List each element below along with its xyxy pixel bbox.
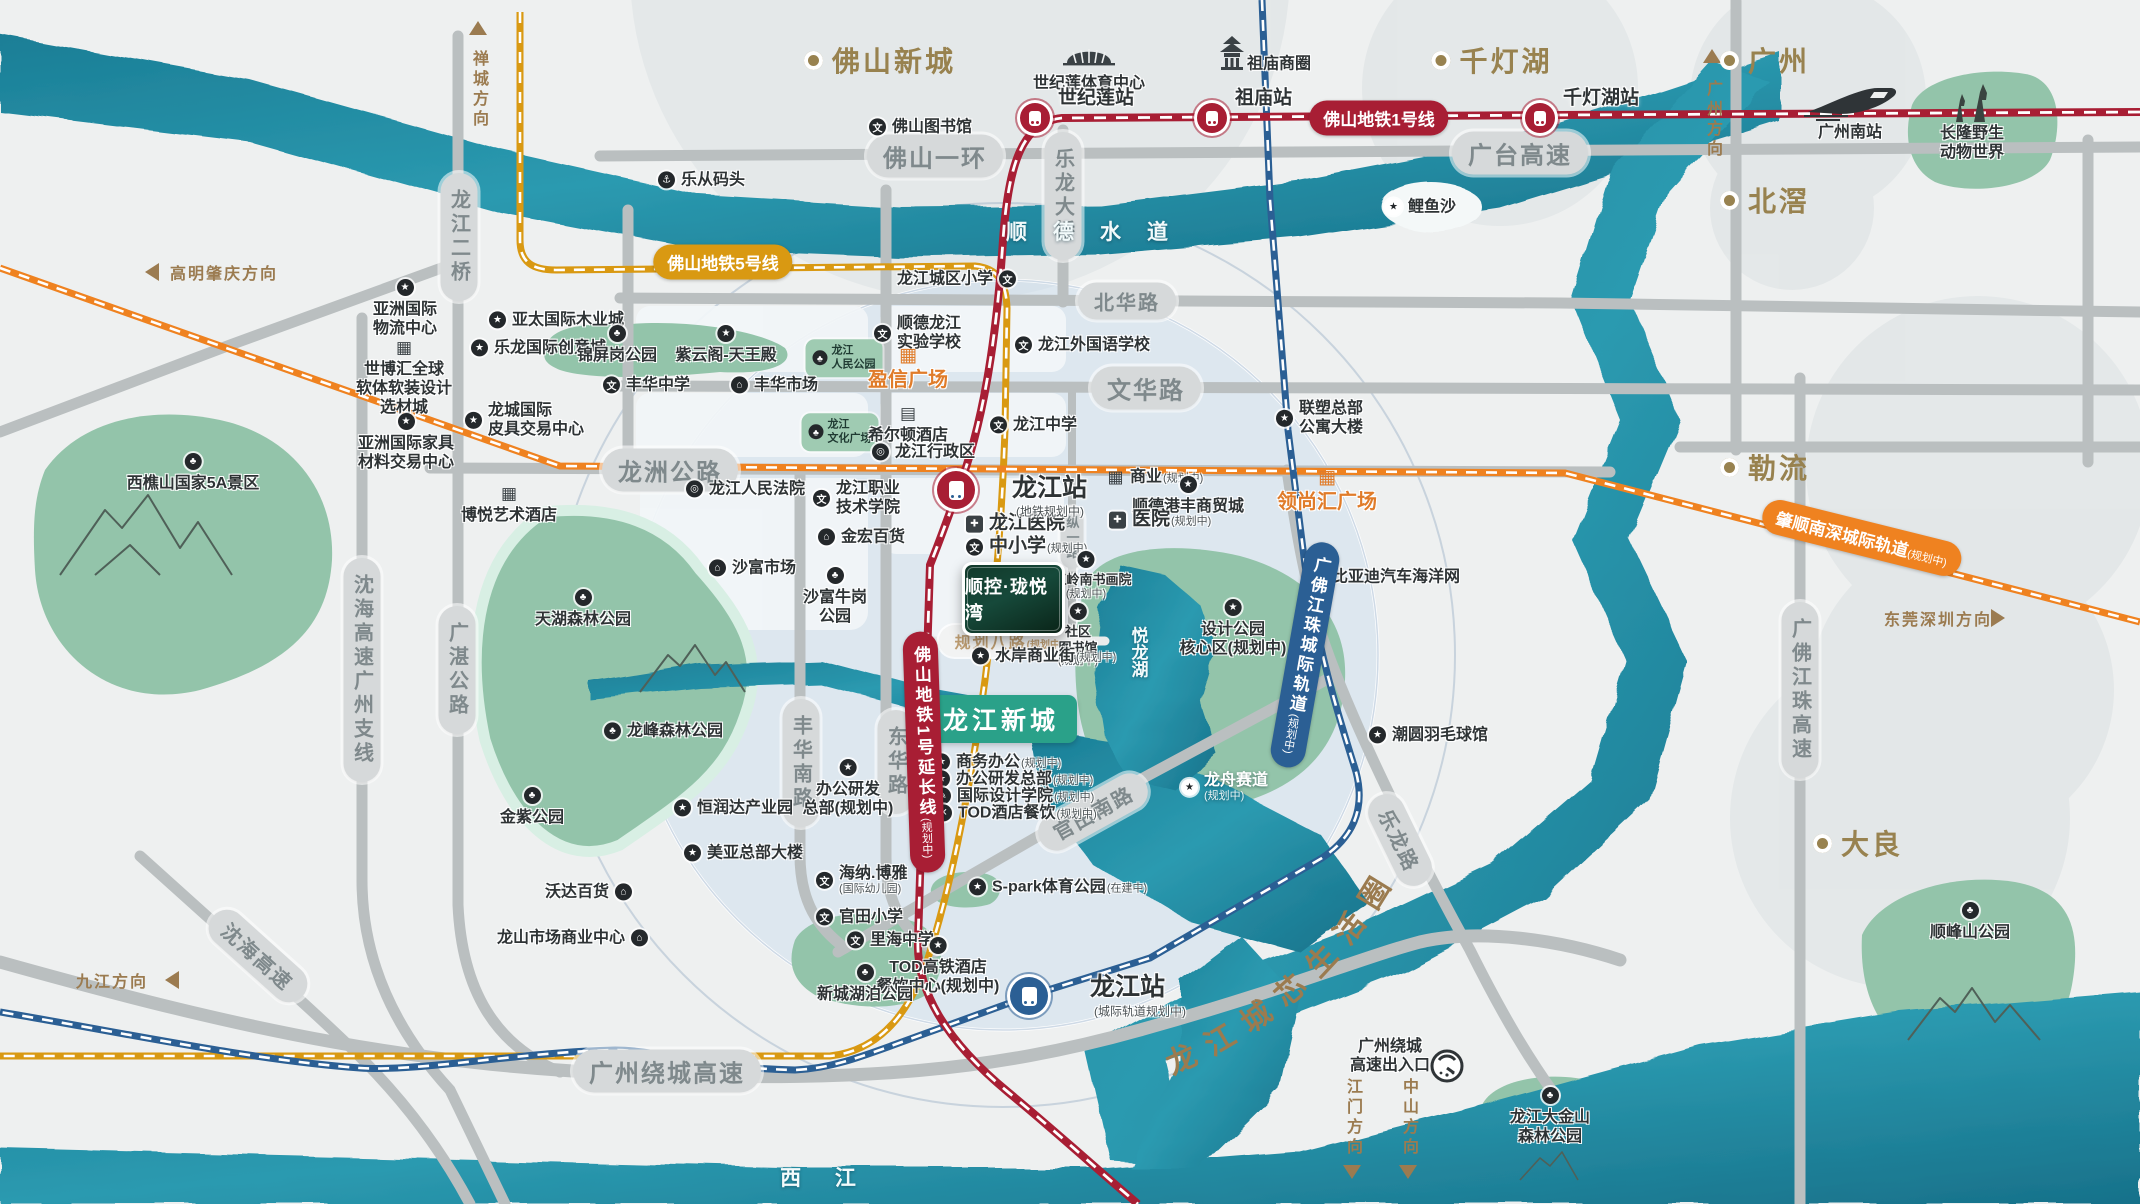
poi-海纳.博雅: 文海纳.博雅(国际幼儿园) <box>816 864 907 896</box>
station-label: 世纪莲站 <box>1058 83 1134 110</box>
poi-text: 龙江大金山森林公园 <box>1510 1108 1590 1146</box>
station-label: 龙江站 <box>1012 468 1087 504</box>
poi-龙舟赛道: ★龙舟赛道(规划中) <box>1181 771 1268 803</box>
poi-line: 医院(规划中) <box>1132 509 1211 532</box>
poi-亚洲国际家具: ★亚洲国际家具材料交易中心 <box>358 413 454 472</box>
poi-沙富市场: ⌂沙富市场 <box>709 558 796 577</box>
road-pill-text: 广湛公路 <box>446 622 468 718</box>
metro-badge-sub: (规划中) <box>1906 548 1948 569</box>
poi-text: 沙富市场 <box>732 558 796 577</box>
poi-text: 美亚总部大楼 <box>707 843 803 862</box>
poi-line: 西樵山国家5A景区 <box>127 474 259 493</box>
location-map: 龙江城芯生活圈 <box>0 0 2140 1204</box>
school-icon: 文 <box>966 538 983 555</box>
poi-line: 龙江职业 <box>836 479 900 498</box>
poi-line: 世博汇全球 <box>356 360 452 379</box>
poi-line: 亚洲国际 <box>373 300 437 319</box>
road-pill-广州绕城高速: 广州绕城高速 <box>573 1050 761 1093</box>
poi-text: TOD酒店餐饮(规划中) <box>958 803 1097 822</box>
anchor-icon: ⚓ <box>658 172 675 189</box>
school-icon: 文 <box>869 119 886 136</box>
poi-text: 龙山市场商业中心 <box>497 928 625 947</box>
poi-龙江大金山: ♣龙江大金山森林公园 <box>1510 1087 1590 1146</box>
poi-丰华中学: 文丰华中学 <box>603 375 690 394</box>
poi-line: 海纳.博雅 <box>839 864 907 883</box>
poi-line: 龙山市场商业中心 <box>497 928 625 947</box>
poi-金宏百货: ⌂金宏百货 <box>818 527 905 546</box>
poi-盈信广场: ▦盈信广场 <box>868 347 948 392</box>
area-donut-icon <box>1720 458 1739 477</box>
poi-line: 龙江外国语学校 <box>1038 335 1150 354</box>
poi-line: 顺德龙江 <box>897 314 961 333</box>
poi-龙江外国语学校: 文龙江外国语学校 <box>1015 335 1150 354</box>
school-icon: 文 <box>874 325 891 342</box>
metro-badge-佛山地铁5号线: 佛山地铁5号线 <box>653 245 792 280</box>
poi-广州南站: 广州南站 <box>1818 123 1882 142</box>
poi-联塑总部: ★联塑总部公寓大楼 <box>1276 399 1363 437</box>
poi-龙江人民法院: ◎龙江人民法院 <box>686 479 805 498</box>
market-icon: ⌂ <box>709 560 726 577</box>
park-box-龙江文化广场: ♣龙江文化广场 <box>802 413 879 451</box>
poi-line: 技术学院 <box>836 498 900 517</box>
star-icon: ★ <box>929 937 946 954</box>
poi-text: 亚洲国际家具材料交易中心 <box>358 434 454 472</box>
market-icon: ⌂ <box>631 930 648 947</box>
poi-龙江中学: 文龙江中学 <box>990 415 1077 434</box>
metro-badge-sub: (规划中) <box>920 818 933 859</box>
metro-badge-text: 佛山地铁5号线 <box>667 255 778 274</box>
poi-line: 丰华中学 <box>626 375 690 394</box>
project-logo-text: 顺控·珑悦湾 <box>965 573 1062 625</box>
water-label-悦龙湖: 悦龙湖 <box>1126 627 1151 678</box>
poi-text: 佛山图书馆 <box>892 117 972 136</box>
poi-水岸商业街: ★水岸商业街(规划中) <box>972 646 1116 665</box>
building-icon: ▦ <box>395 339 412 356</box>
poi-text: 盈信广场 <box>868 368 948 392</box>
metro-station-icon-龙江站 <box>1010 977 1048 1015</box>
poi-text: 广州南站 <box>1818 123 1882 142</box>
poi-text: 金宏百货 <box>841 527 905 546</box>
tree-icon: ♣ <box>1961 902 1978 919</box>
star-icon: ★ <box>397 413 414 430</box>
poi-text: 博悦艺术酒店 <box>461 506 557 525</box>
poi-line: 鲤鱼沙 <box>1408 197 1456 216</box>
poi-line: 金紫公园 <box>500 808 564 827</box>
direction-中山方向: 中山方向 <box>1396 1078 1420 1158</box>
poi-line: 紫云阁-天王殿 <box>675 346 776 365</box>
poi-line: 广州南站 <box>1818 123 1882 142</box>
building_o-icon: ▦ <box>1319 469 1336 486</box>
tree-icon: ♣ <box>574 589 591 606</box>
poi-line: 龙江中学 <box>1013 415 1077 434</box>
road-pill-text: 佛山一环 <box>883 146 987 173</box>
star-icon: ★ <box>471 340 488 357</box>
metro-station-icon-祖庙站 <box>1197 103 1227 133</box>
market-icon: ⌂ <box>818 529 835 546</box>
road-pill-佛山一环: 佛山一环 <box>867 135 1003 178</box>
map-labels-layer: 顺控·珑悦湾 龙江新城 ⚓乐从码头文佛山图书馆世纪莲体育中心祖庙商圈广州南站长隆… <box>0 0 2140 1204</box>
poi-line: 软体软装设计 <box>356 379 452 398</box>
hospital-icon: ✚ <box>1109 511 1126 528</box>
metro-badge-佛山地铁1号线: 佛山地铁1号线 <box>1309 101 1448 136</box>
poi-line: 盈信广场 <box>868 368 948 392</box>
direction-禅城方向: 禅城方向 <box>466 50 490 130</box>
tree-icon: ♣ <box>809 425 824 440</box>
tree-icon: ♣ <box>1541 1087 1558 1104</box>
poi-line: 高速出入口 <box>1350 1056 1430 1075</box>
road-pill-text: 沈海高速广州支线 <box>351 574 373 766</box>
metro-badge-sub: (规划中) <box>1281 713 1300 755</box>
poi-龙城国际: ★龙城国际皮具交易中心 <box>465 401 584 439</box>
school-icon: 文 <box>816 909 833 926</box>
poi-乐从码头: ⚓乐从码头 <box>658 170 745 189</box>
direction-arrow-down <box>1343 1165 1361 1179</box>
star-icon: ★ <box>1179 476 1196 493</box>
poi-line: 皮具交易中心 <box>488 420 584 439</box>
road-pill-text: 龙江二桥 <box>448 189 470 285</box>
station-sublabel: (城际轨道规划中) <box>1094 1003 1186 1020</box>
star_light-icon: ★ <box>1181 779 1198 796</box>
poi-sub: (在建中) <box>1107 882 1147 894</box>
poi-锦屏岗公园: ♣锦屏岗公园 <box>577 325 657 365</box>
tree-icon: ♣ <box>813 351 828 366</box>
school-icon: 文 <box>603 377 620 394</box>
water-label-顺德水道: 顺德水道 <box>1006 216 1194 246</box>
poi-line: 祖庙商圈 <box>1247 54 1311 73</box>
poi-line: 锦屏岗公园 <box>577 346 657 365</box>
poi-text: 龙江职业技术学院 <box>836 479 900 517</box>
area-text: 千灯湖 <box>1459 40 1552 80</box>
poi-龙山市场商业中心: 龙山市场商业中心⌂ <box>497 928 648 947</box>
poi-官田小学: 文官田小学 <box>816 907 903 926</box>
poi-line: (国际幼儿园) <box>839 883 907 896</box>
project-logo: 顺控·珑悦湾 <box>962 562 1065 636</box>
poi-text: 联塑总部公寓大楼 <box>1299 399 1363 437</box>
poi-龙江行政区: ◎龙江行政区 <box>872 442 975 461</box>
school-icon: 文 <box>816 872 833 889</box>
area-label-佛山新城: 佛山新城 <box>804 40 956 80</box>
area-text: 大良 <box>1841 823 1903 863</box>
road-pill-广湛公路: 广湛公路 <box>439 606 476 734</box>
poi-text: 乐从码头 <box>681 170 745 189</box>
direction-arrow-right <box>1991 609 2005 627</box>
poi-line: 博悦艺术酒店 <box>461 506 557 525</box>
poi-text: 沃达百货 <box>545 882 609 901</box>
poi-text: 亚洲国际物流中心 <box>373 300 437 338</box>
star-icon: ★ <box>718 325 735 342</box>
star_light-icon: ★ <box>1385 199 1402 216</box>
poi-text: 丰华市场 <box>754 375 818 394</box>
poi-医院: ✚医院(规划中) <box>1109 509 1211 532</box>
star-icon: ★ <box>674 800 691 817</box>
school-icon: 文 <box>847 932 864 949</box>
poi-text: 新城湖泊公园 <box>817 985 913 1004</box>
poi-text: 锦屏岗公园 <box>577 346 657 365</box>
building-icon: ▦ <box>500 485 517 502</box>
poi-恒润达产业园: ★恒润达产业园 <box>674 798 793 817</box>
poi-办公研发: ★办公研发总部(规划中) <box>803 759 894 818</box>
station-glyph <box>949 481 964 500</box>
road-pill-text: 沈海高速 <box>216 920 296 995</box>
poi-龙江职业: 文龙江职业技术学院 <box>813 479 900 517</box>
market-icon: ⌂ <box>615 884 632 901</box>
poi-广州绕城: 广州绕城高速出入口 <box>1350 1037 1430 1075</box>
poi-顺峰山公园: ♣顺峰山公园 <box>1930 902 2010 942</box>
water-label-西 江: 西 江 <box>780 1162 870 1192</box>
poi-text: 金紫公园 <box>500 808 564 827</box>
metro-badge-肇顺南深城际轨道: 肇顺南深城际轨道(规划中) <box>1759 496 1966 579</box>
poi-line: 金宏百货 <box>841 527 905 546</box>
poi-line: 沃达百货 <box>545 882 609 901</box>
poi-line: 沙富市场 <box>732 558 796 577</box>
station-glyph <box>1029 111 1041 126</box>
road-pill-沈海高速: 沈海高速 <box>201 902 315 1010</box>
area-label-勒流: 勒流 <box>1720 447 1810 487</box>
tree-icon: ♣ <box>826 567 843 584</box>
poi-sub: (规划中) <box>1171 516 1211 528</box>
star-icon: ★ <box>1276 410 1293 427</box>
area-donut-icon <box>1720 51 1739 70</box>
poi-line: 官田小学 <box>839 907 903 926</box>
metro-badge-text: 佛山地铁1号线 <box>1323 111 1434 130</box>
longjiang-newtown-badge: 龙江新城 <box>925 695 1077 743</box>
poi-line: 龙江大金山 <box>1510 1108 1590 1127</box>
poi-line: 公园 <box>803 607 867 626</box>
poi-text: 龙江中学 <box>1013 415 1077 434</box>
road-pill-文华路: 文华路 <box>1091 367 1201 410</box>
poi-line: S-park体育公园(在建中) <box>992 877 1147 896</box>
poi-龙江城区小学: 龙江城区小学文 <box>897 269 1016 288</box>
poi-text: 龙江人民法院 <box>709 479 805 498</box>
park-box-line: 文化广场 <box>828 432 872 446</box>
poi-text: 长隆野生动物世界 <box>1940 124 2004 162</box>
area-label-千灯湖: 千灯湖 <box>1431 40 1552 80</box>
poi-text: 天湖森林公园 <box>535 610 631 629</box>
poi-丰华市场: ⌂丰华市场 <box>731 375 818 394</box>
poi-text: 沙富牛岗公园 <box>803 588 867 626</box>
poi-text: 紫云阁-天王殿 <box>675 346 776 365</box>
poi-设计公园: ★设计公园核心区(规划中) <box>1180 599 1287 658</box>
direction-高明肇庆方向: 高明肇庆方向 <box>170 260 278 284</box>
poi-text: 龙城国际皮具交易中心 <box>488 401 584 439</box>
poi-line: 潮圆羽毛球馆 <box>1392 725 1488 744</box>
poi-sub: (规划中) <box>1076 651 1116 663</box>
poi-sub: (规划中) <box>1054 791 1094 803</box>
road-pill-沈海高速广州支线: 沈海高速广州支线 <box>344 558 381 782</box>
poi-line: 联塑总部 <box>1299 399 1363 418</box>
poi-text: 比亚迪汽车海洋网 <box>1332 567 1460 586</box>
area-donut-icon <box>804 51 823 70</box>
poi-line: (规划中) <box>1204 790 1268 803</box>
poi-line: 公寓大楼 <box>1299 418 1363 437</box>
poi-领尚汇广场: ▦领尚汇广场 <box>1277 469 1377 514</box>
station-glyph <box>1206 111 1218 126</box>
poi-line: 丰华市场 <box>754 375 818 394</box>
road-pill-text: 广佛江珠高速 <box>1789 618 1811 762</box>
gov-icon: ◎ <box>686 481 703 498</box>
area-donut-icon <box>1813 834 1832 853</box>
metro-badge-text: 肇顺南深城际轨道 <box>1774 509 1911 560</box>
road-pill-北华路: 北华路 <box>1078 283 1176 320</box>
poi-sub: (规划中) <box>1021 757 1061 769</box>
poi-text: 恒润达产业园 <box>697 798 793 817</box>
road-pill-text: 广台高速 <box>1468 143 1572 170</box>
direction-江门方向: 江门方向 <box>1340 1078 1364 1158</box>
poi-text: 广州绕城高速出入口 <box>1350 1037 1430 1075</box>
poi-line: 森林公园 <box>1510 1127 1590 1146</box>
metro-badge-text: 佛山地铁1号延长线 <box>911 645 936 818</box>
poi-沃达百货: 沃达百货⌂ <box>545 882 632 901</box>
poi-sub: (规划中) <box>1057 808 1097 820</box>
poi-S-park体育公园: ★S-park体育公园(在建中) <box>969 877 1147 896</box>
station-sublabel: (地铁规划中) <box>1016 503 1084 520</box>
poi-line: 办公研发 <box>803 780 894 799</box>
poi-天湖森林公园: ♣天湖森林公园 <box>535 589 631 629</box>
road-pill-广台高速: 广台高速 <box>1452 132 1588 175</box>
road-pill-text: 北华路 <box>1094 293 1160 315</box>
direction-arrow-left <box>165 971 179 989</box>
road-pill-乐龙路: 乐龙路 <box>1362 788 1438 892</box>
star-icon: ★ <box>1369 727 1386 744</box>
star-icon: ★ <box>489 312 506 329</box>
poi-line: 龙舟赛道 <box>1204 771 1268 790</box>
metro-badge-text: 广佛江珠城际轨道 <box>1285 555 1331 716</box>
poi-text: 龙江行政区 <box>895 442 975 461</box>
poi-line: 美亚总部大楼 <box>707 843 803 862</box>
poi-line: 物流中心 <box>373 319 437 338</box>
poi-text: 西樵山国家5A景区 <box>127 474 259 493</box>
poi-亚洲国际: ★亚洲国际物流中心 <box>373 279 437 338</box>
poi-text: 水岸商业街(规划中) <box>995 646 1116 665</box>
poi-美亚总部大楼: ★美亚总部大楼 <box>684 843 803 862</box>
poi-line: TOD酒店餐饮(规划中) <box>958 803 1097 822</box>
star-icon: ★ <box>396 279 413 296</box>
poi-line: 新城湖泊公园 <box>817 985 913 1004</box>
direction-arrow-up <box>1703 49 1721 63</box>
poi-line: 水岸商业街(规划中) <box>995 646 1116 665</box>
tree-icon: ♣ <box>523 787 540 804</box>
poi-sub: (规划中) <box>1053 774 1093 786</box>
road-pill-广佛江珠高速: 广佛江珠高速 <box>1782 602 1819 778</box>
poi-line: 比亚迪汽车海洋网 <box>1332 567 1460 586</box>
area-label-大良: 大良 <box>1813 823 1903 863</box>
poi-line: 核心区(规划中) <box>1180 639 1287 658</box>
poi-line: 沙富牛岗 <box>803 588 867 607</box>
poi-line: 龙江行政区 <box>895 442 975 461</box>
hotel-icon: ▤ <box>899 405 916 422</box>
poi-text: 龙江城区小学 <box>897 269 993 288</box>
area-label-北滘: 北滘 <box>1720 180 1810 220</box>
poi-line: 亚洲国际家具 <box>358 434 454 453</box>
direction-arrow-left <box>145 263 159 281</box>
poi-line: 龙江城区小学 <box>897 269 993 288</box>
poi-line: 乐从码头 <box>681 170 745 189</box>
area-donut-icon <box>1431 51 1450 70</box>
station-label: 千灯湖站 <box>1563 83 1639 110</box>
poi-TOD酒店餐饮: ✕TOD酒店餐饮(规划中) <box>935 803 1097 822</box>
area-donut-icon <box>1720 191 1739 210</box>
area-text: 佛山新城 <box>832 40 956 80</box>
building-icon: ▦ <box>1107 469 1124 486</box>
star-icon: ★ <box>465 412 482 429</box>
poi-text: 潮圆羽毛球馆 <box>1392 725 1488 744</box>
poi-line: 设计公园 <box>1180 620 1287 639</box>
star-icon: ★ <box>972 648 989 665</box>
poi-line: 佛山图书馆 <box>892 117 972 136</box>
poi-text: 医院(规划中) <box>1132 509 1211 532</box>
poi-龙峰森林公园: ♣龙峰森林公园 <box>604 721 723 740</box>
poi-line: 恒润达产业园 <box>697 798 793 817</box>
poi-长隆野生: 长隆野生动物世界 <box>1940 124 2004 162</box>
poi-text: 龙舟赛道(规划中) <box>1204 771 1268 803</box>
area-text: 广州 <box>1748 40 1810 80</box>
poi-text: 顺峰山公园 <box>1930 923 2010 942</box>
road-pill-text: 广州绕城高速 <box>589 1061 745 1088</box>
metro-station-icon-千灯湖站 <box>1525 103 1555 133</box>
poi-佛山图书馆: 文佛山图书馆 <box>869 117 972 136</box>
poi-text: 办公研发总部(规划中) <box>803 780 894 818</box>
direction-东莞深圳方向: 东莞深圳方向 <box>1884 606 1992 630</box>
poi-line: 动物世界 <box>1940 143 2004 162</box>
poi-line: 天湖森林公园 <box>535 610 631 629</box>
star-icon: ★ <box>969 879 986 896</box>
road-pill-text: 文华路 <box>1107 378 1185 405</box>
poi-text: 世博汇全球软体软装设计选材城 <box>356 360 452 418</box>
poi-鲤鱼沙: ★鲤鱼沙 <box>1385 197 1456 216</box>
school-icon: 文 <box>813 490 830 507</box>
area-text: 北滘 <box>1748 180 1810 220</box>
poi-text: 鲤鱼沙 <box>1408 197 1456 216</box>
poi-line: 龙峰森林公园 <box>627 721 723 740</box>
station-glyph <box>1022 987 1037 1006</box>
poi-text: 海纳.博雅(国际幼儿园) <box>839 864 907 896</box>
star-icon: ★ <box>1224 599 1241 616</box>
poi-希尔顿酒店: ▤希尔顿酒店 <box>868 405 948 445</box>
gov-icon: ◎ <box>872 444 889 461</box>
market-icon: ⌂ <box>731 377 748 394</box>
poi-text: 官田小学 <box>839 907 903 926</box>
star-icon: ★ <box>1077 551 1094 568</box>
school-icon: 文 <box>999 271 1016 288</box>
building_o-icon: ▦ <box>900 347 917 364</box>
park-box-line: 龙江 <box>828 418 872 432</box>
poi-line: 长隆野生 <box>1940 124 2004 143</box>
tree-icon: ♣ <box>604 723 621 740</box>
star-icon: ★ <box>1069 603 1086 620</box>
poi-text: 龙江外国语学校 <box>1038 335 1150 354</box>
poi-新城湖泊公园: ♣新城湖泊公园 <box>817 964 913 1004</box>
star-icon: ★ <box>684 845 701 862</box>
area-label-广州: 广州 <box>1720 40 1810 80</box>
hospital-icon: ✚ <box>966 515 983 532</box>
road-pill-text: 乐龙路 <box>1373 807 1422 876</box>
poi-金紫公园: ♣金紫公园 <box>500 787 564 827</box>
school-icon: 文 <box>990 417 1007 434</box>
direction-九江方向: 九江方向 <box>76 968 148 992</box>
poi-紫云阁-天王殿: ★紫云阁-天王殿 <box>675 325 776 365</box>
metro-badge-佛山地铁1号延长线: 佛山地铁1号延长线(规划中) <box>902 631 945 873</box>
park-box-text: 龙江文化广场 <box>828 418 872 446</box>
direction-arrow-up <box>469 21 487 35</box>
poi-line: 广州绕城 <box>1350 1037 1430 1056</box>
poi-西樵山国家5A景区: ♣西樵山国家5A景区 <box>127 453 259 493</box>
metro-station-icon-龙江站 <box>937 471 975 509</box>
direction-广州方向: 广州方向 <box>1700 80 1724 160</box>
tree-icon: ♣ <box>185 453 202 470</box>
poi-line: 领尚汇广场 <box>1277 490 1377 514</box>
poi-line: 顺峰山公园 <box>1930 923 2010 942</box>
poi-祖庙商圈: 祖庙商圈 <box>1247 54 1311 73</box>
